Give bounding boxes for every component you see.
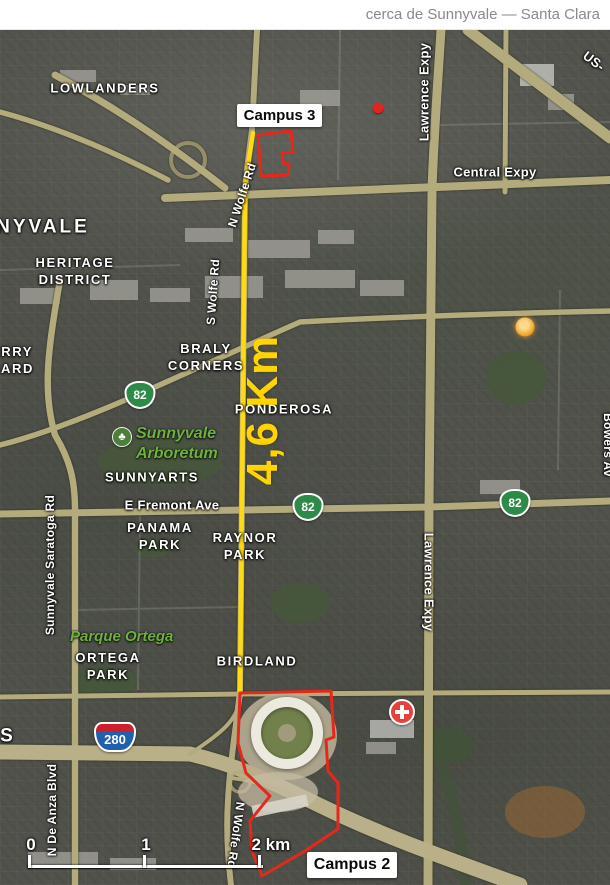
label-line: RAYNOR [213, 530, 278, 545]
campus2-callout[interactable]: Campus 2 [307, 852, 397, 878]
arboretum-tree-icon[interactable]: ♣ [112, 427, 132, 447]
road-label-sunnyvale-saratoga-rd: Sunnyvale Saratoga Rd [43, 495, 57, 635]
campus3-boundary[interactable] [258, 131, 293, 176]
scale-tick [258, 855, 261, 868]
shield-number: 82 [301, 500, 314, 514]
label-line: BRALY [180, 341, 232, 356]
raynor-park-area [270, 583, 330, 623]
road-label-e-fremont-ave: E Fremont Ave [125, 498, 220, 513]
scale-label-0: 0 [26, 835, 35, 855]
label-line: PARK [139, 537, 181, 552]
label-line: PARK [87, 667, 129, 682]
scale-tick [143, 855, 146, 868]
neighborhood-label-sunnyarts: SUNNYARTS [105, 470, 199, 487]
neighborhood-label-raynor-park: RAYNOR PARK [213, 530, 278, 564]
hospital-icon[interactable] [389, 699, 415, 725]
campus3-callout[interactable]: Campus 3 [237, 104, 322, 127]
interstate-280-shield: 280 [94, 722, 136, 752]
label-line: CORNERS [168, 358, 244, 373]
road-label-bowers-partial: Bowers Av [601, 413, 610, 477]
label-line: HARD [0, 361, 34, 376]
label-line: Arboretum [136, 445, 218, 462]
scale-tick [28, 855, 31, 868]
red-poi-dot[interactable] [373, 103, 384, 114]
park-area [486, 351, 546, 405]
shield-number: 280 [104, 732, 126, 747]
neighborhood-label-cherry-orchard-partial: ERRY HARD [0, 344, 34, 378]
header-bar: cerca de Sunnyvale — Santa Clara [0, 0, 610, 30]
map-context-title: cerca de Sunnyvale — Santa Clara [366, 6, 610, 23]
label-line: PARK [224, 547, 266, 562]
road-label-lawrence-expy-south: Lawrence Expy [422, 533, 437, 632]
neighborhood-label-ortega-park: ORTEGA PARK [75, 650, 140, 684]
expressway-feeder [0, 112, 168, 180]
map-vector-layer [0, 30, 610, 885]
tree-glyph: ♣ [118, 431, 125, 443]
city-label-sunnyvale-partial: NYVALE [0, 216, 90, 241]
label-line: DISTRICT [39, 272, 112, 287]
orange-roof-district [505, 786, 585, 838]
label-line: ERRY [0, 344, 33, 359]
school-poi-icon[interactable] [516, 318, 535, 337]
neighborhood-label-panama-park: PANAMA PARK [127, 520, 193, 554]
neighborhood-label-lowlanders: LOWLANDERS [50, 81, 159, 98]
label-line: ORTEGA [75, 650, 140, 665]
park-label-sunnyvale-arboretum: Sunnyvale Arboretum [136, 424, 218, 464]
neighborhood-label-birdland: BIRDLAND [217, 654, 298, 671]
label-partial-s: S [0, 725, 16, 750]
shield-number: 82 [133, 388, 146, 402]
neighborhood-label-braly-corners: BRALY CORNERS [168, 341, 244, 375]
route-distance-label: 4,6 Km [238, 335, 288, 485]
us-highway-road [468, 30, 610, 138]
road-label-lawrence-expy-north: Lawrence Expy [417, 43, 432, 142]
scale-label-1: 1 [141, 835, 150, 855]
neighborhood-label-heritage-district: HERITAGE DISTRICT [35, 255, 114, 289]
label-line: PANAMA [127, 520, 193, 535]
scale-label-2km: 2 km [252, 835, 291, 855]
label-line: Sunnyvale [136, 425, 216, 442]
satellite-map-canvas[interactable]: LOWLANDERS NYVALE HERITAGE DISTRICT ERRY… [0, 30, 610, 885]
map-scale-bar: 0 1 2 km [22, 830, 312, 870]
road-label-central-expy: Central Expy [453, 165, 536, 180]
central-expy-road [165, 180, 610, 198]
label-line: HERITAGE [35, 255, 114, 270]
park-label-parque-ortega: Parque Ortega [70, 628, 173, 647]
shield-number: 82 [508, 496, 521, 510]
